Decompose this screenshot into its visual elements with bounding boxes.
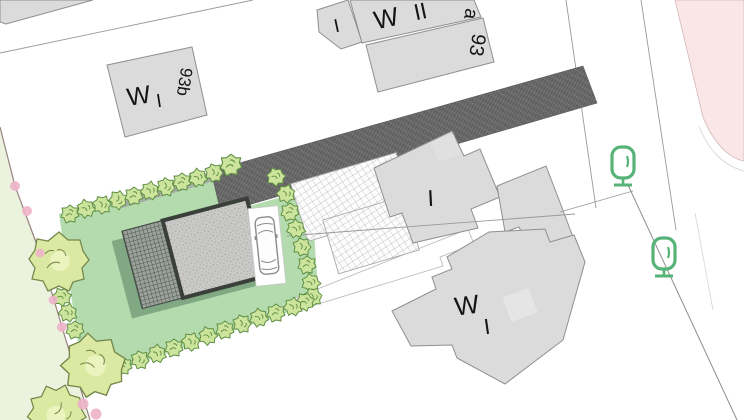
site-plan-map: W I 93b I W II a 93 I W I	[0, 0, 744, 420]
label-93-number: 93	[464, 32, 489, 57]
site-plan-screenshot: W I 93b I W II a 93 I W I	[0, 0, 744, 420]
boundary-marker-dot	[49, 296, 58, 305]
label-central-storeys: I	[427, 185, 435, 211]
label-south-use: W	[453, 288, 482, 321]
boundary-marker-dot	[91, 409, 102, 420]
boundary-marker-dot	[36, 249, 45, 258]
label-93b-use: W	[125, 80, 153, 111]
boundary-marker-dot	[10, 181, 20, 191]
boundary-marker-dot	[22, 206, 32, 216]
boundary-marker-dot	[78, 399, 89, 410]
boundary-marker-dot	[57, 322, 67, 332]
